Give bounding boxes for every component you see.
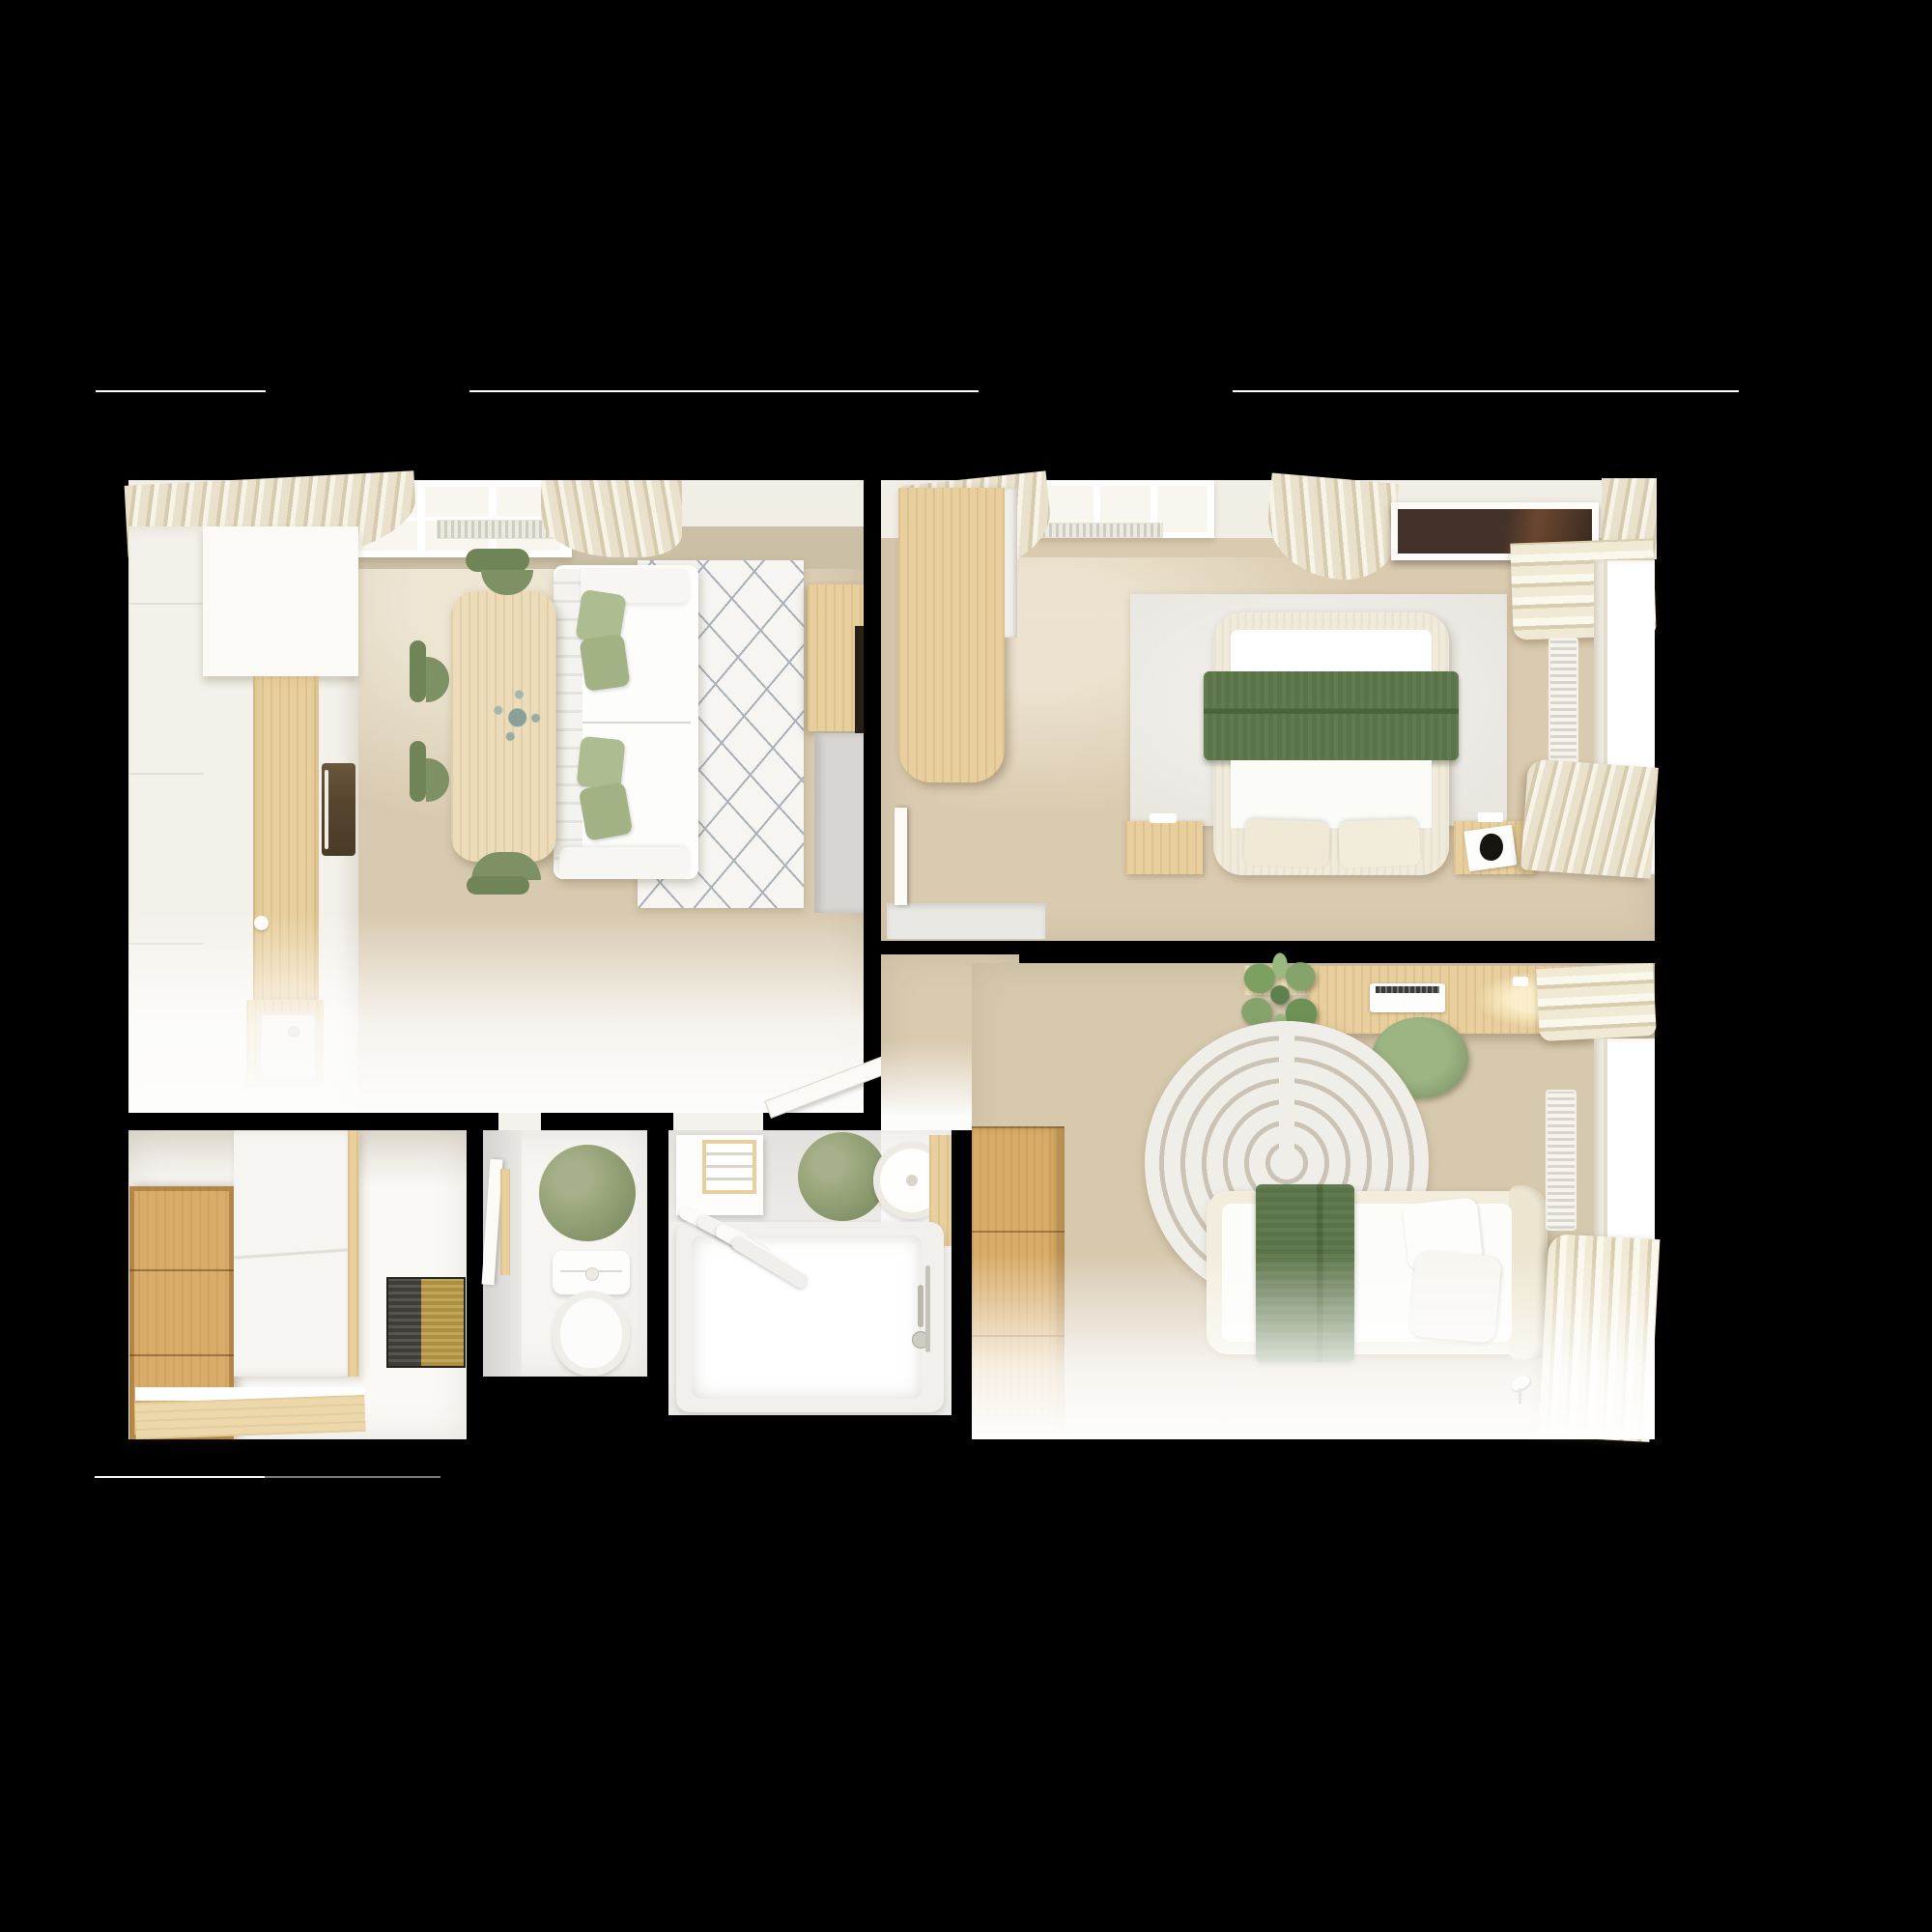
master-door-leaf bbox=[895, 808, 907, 905]
master-pillow-left bbox=[1243, 818, 1330, 867]
kitchen-upper-cabinet bbox=[203, 526, 358, 676]
towel-shelf bbox=[702, 1140, 756, 1194]
doormat-gold bbox=[421, 1277, 466, 1368]
hall-dresser-oak-edge bbox=[348, 1130, 359, 1377]
leader-line-bedroom bbox=[1233, 390, 1739, 392]
master-wardrobe-door-edge bbox=[1005, 488, 1017, 638]
master-bench bbox=[887, 903, 1045, 939]
laptop-keyboard bbox=[1376, 986, 1439, 993]
wc-shelf bbox=[500, 1169, 510, 1275]
kids-radiator bbox=[1546, 1090, 1577, 1231]
wc bbox=[483, 1130, 647, 1377]
floor-plan-canvas bbox=[0, 0, 1932, 1932]
nightstand-left-decor bbox=[1150, 813, 1177, 823]
curtain-master-bottom bbox=[1520, 758, 1659, 878]
tub-handrail bbox=[925, 1265, 930, 1352]
master-bedroom bbox=[881, 480, 1655, 941]
sink-drain bbox=[906, 1175, 918, 1186]
desk-lamp-base bbox=[1513, 977, 1528, 986]
oven-handle bbox=[325, 770, 328, 849]
nightstand-right-box bbox=[1478, 812, 1503, 822]
sofa-pillow-2 bbox=[579, 634, 630, 692]
chair-left2-rail bbox=[410, 741, 426, 802]
bathroom bbox=[668, 1130, 952, 1415]
toilet-flush-button bbox=[585, 1267, 599, 1281]
fallen-wine-glass-stem bbox=[1519, 1388, 1521, 1404]
chair-left1-rail bbox=[410, 640, 426, 702]
sofa-pillow-4 bbox=[579, 781, 634, 841]
leader-line-hall-gray bbox=[265, 1476, 440, 1478]
master-pillow-right bbox=[1338, 819, 1421, 868]
tub-faucet-bar bbox=[918, 1285, 923, 1327]
master-radiator bbox=[1548, 638, 1578, 767]
leader-line-hall bbox=[95, 1476, 265, 1478]
chair-bottom-rail bbox=[467, 876, 529, 895]
roman-shade-kids bbox=[1536, 963, 1657, 1041]
sofa-seat-seam bbox=[582, 722, 691, 724]
wc-round-rug bbox=[539, 1145, 636, 1241]
doorway-bath bbox=[673, 1113, 763, 1130]
leader-line-kitchen bbox=[96, 390, 266, 392]
toilet-bowl bbox=[553, 1291, 630, 1376]
entry-hall bbox=[128, 1130, 467, 1439]
bathtub-basin bbox=[692, 1236, 922, 1399]
kids-bedroom bbox=[972, 963, 1655, 1439]
master-wardrobe bbox=[898, 488, 1005, 782]
master-bed-duvet bbox=[1231, 760, 1432, 828]
living-floor-white-fade bbox=[128, 913, 864, 1113]
leader-line-living bbox=[469, 390, 979, 392]
bedroom-ceiling-vent bbox=[1041, 523, 1163, 538]
hall-step bbox=[134, 1395, 365, 1439]
round-rug-slit bbox=[1279, 1021, 1294, 1156]
master-bed-blanket bbox=[1204, 671, 1459, 760]
doorway-wc bbox=[498, 1113, 541, 1130]
doormat-dark bbox=[386, 1277, 425, 1368]
nightstand-left bbox=[1125, 821, 1203, 874]
living-room bbox=[128, 480, 864, 1113]
kids-floor-white-fade bbox=[972, 1253, 1655, 1439]
chair-top-rail bbox=[466, 549, 529, 572]
gray-cabinet bbox=[814, 733, 864, 913]
sofa-armrest-bottom bbox=[559, 847, 689, 879]
